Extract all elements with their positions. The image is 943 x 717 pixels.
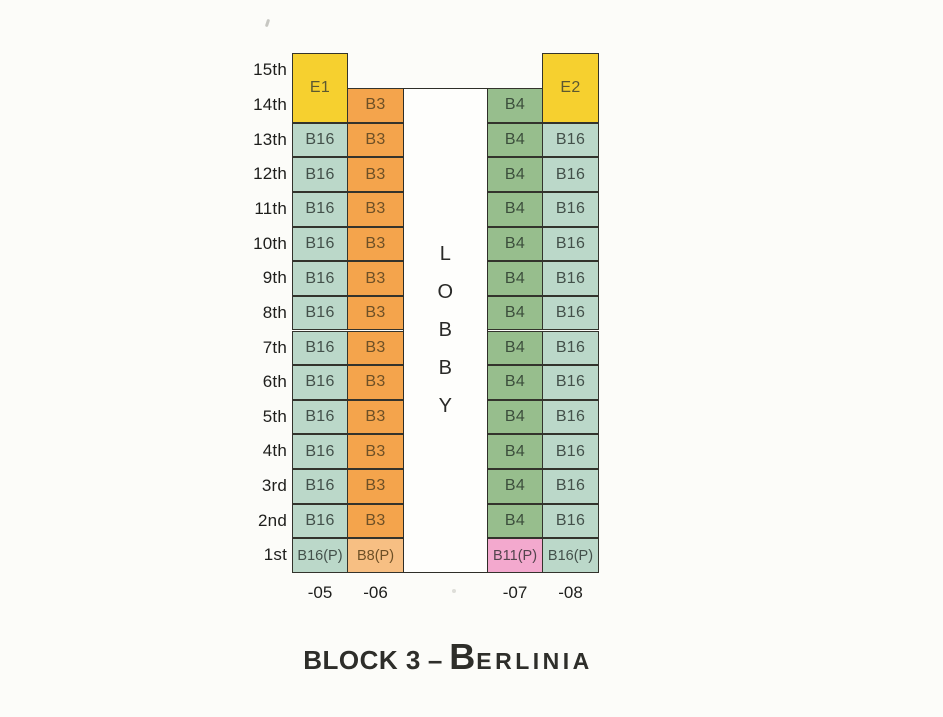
- unit-cell-b3: B3: [347, 157, 404, 192]
- unit-cell-b3: B3: [347, 192, 404, 227]
- unit-cell-b4: B4: [487, 123, 543, 158]
- floor-label: 10th: [215, 227, 287, 262]
- stack-label: -07: [485, 584, 545, 602]
- lobby-letter: B: [439, 349, 453, 387]
- floor-label: 15th: [215, 53, 287, 88]
- title-block-label: BLOCK 3: [303, 645, 421, 675]
- unit-cell-b4: B4: [487, 365, 543, 400]
- floor-label: 14th: [215, 88, 287, 123]
- unit-cell-b3: B3: [347, 365, 404, 400]
- lobby-letter: L: [440, 235, 452, 273]
- unit-cell-b16: B16: [542, 469, 599, 504]
- floor-label: 7th: [215, 331, 287, 366]
- unit-cell-b16: B16: [542, 434, 599, 469]
- unit-cell-b3: B3: [347, 400, 404, 435]
- unit-cell-b16: B16: [542, 296, 599, 331]
- unit-cell-b16: B16: [542, 227, 599, 262]
- unit-cell-e2: E2: [542, 53, 599, 122]
- unit-cell-b16: B16: [292, 469, 348, 504]
- unit-cell-b16: B16: [292, 296, 348, 331]
- unit-cell-b16: B16: [542, 123, 599, 158]
- unit-cell-b16: B16: [542, 261, 599, 296]
- unit-cell-b3: B3: [347, 504, 404, 539]
- unit-cell-b4: B4: [487, 400, 543, 435]
- floor-label: 6th: [215, 365, 287, 400]
- stack-label: -05: [290, 584, 350, 602]
- unit-cell-b16: B16: [542, 331, 599, 366]
- unit-cell-b3: B3: [347, 469, 404, 504]
- unit-cell-b16: B16: [292, 365, 348, 400]
- unit-cell-b3: B3: [347, 331, 404, 366]
- floor-label: 13th: [215, 123, 287, 158]
- unit-cell-b3: B3: [347, 296, 404, 331]
- unit-cell-b4: B4: [487, 261, 543, 296]
- unit-cell-b16: B16: [292, 331, 348, 366]
- title-name-initial: B: [449, 636, 475, 677]
- lobby-letter: O: [437, 273, 453, 311]
- unit-cell-b16: B16: [292, 434, 348, 469]
- unit-cell-b16: B16: [292, 400, 348, 435]
- unit-cell-b16: B16: [542, 157, 599, 192]
- unit-cell-b8p: B8(P): [347, 538, 404, 573]
- unit-cell-b16: B16: [292, 123, 348, 158]
- unit-cell-b4: B4: [487, 469, 543, 504]
- unit-cell-b4: B4: [487, 157, 543, 192]
- unit-cell-b16: B16: [292, 227, 348, 262]
- unit-cell-b16p: B16(P): [292, 538, 348, 573]
- unit-cell-b3: B3: [347, 434, 404, 469]
- unit-cell-b16: B16: [542, 400, 599, 435]
- unit-cell-b3: B3: [347, 88, 404, 123]
- unit-cell-b4: B4: [487, 192, 543, 227]
- floor-label: 9th: [215, 261, 287, 296]
- floor-label: 5th: [215, 400, 287, 435]
- unit-cell-b16p: B16(P): [542, 538, 599, 573]
- unit-cell-b16: B16: [292, 504, 348, 539]
- stack-label: -06: [346, 584, 406, 602]
- unit-cell-b3: B3: [347, 261, 404, 296]
- diagram-title: BLOCK 3–BERLINIA: [0, 636, 896, 674]
- unit-cell-b16: B16: [542, 192, 599, 227]
- unit-cell-e1: E1: [292, 53, 348, 122]
- unit-cell-b3: B3: [347, 227, 404, 262]
- floor-label: 8th: [215, 296, 287, 331]
- title-dash: –: [428, 645, 442, 675]
- floor-label: 2nd: [215, 504, 287, 539]
- lobby-letter: B: [439, 311, 453, 349]
- title-name-rest: ERLINIA: [476, 648, 593, 674]
- unit-cell-b11p: B11(P): [487, 538, 543, 573]
- unit-cell-b3: B3: [347, 123, 404, 158]
- unit-cell-b4: B4: [487, 227, 543, 262]
- scan-dot: [452, 589, 456, 593]
- block-stacking-diagram: 15th14th13th12th11th10th9th8th7th6th5th4…: [0, 0, 943, 717]
- unit-cell-b4: B4: [487, 88, 543, 123]
- unit-cell-b16: B16: [292, 261, 348, 296]
- lobby-letter: Y: [439, 387, 453, 425]
- unit-cell-b16: B16: [542, 504, 599, 539]
- lobby: LOBBY: [403, 88, 488, 573]
- unit-cell-b16: B16: [542, 365, 599, 400]
- unit-cell-b16: B16: [292, 192, 348, 227]
- stack-label: -08: [541, 584, 601, 602]
- unit-cell-b4: B4: [487, 504, 543, 539]
- unit-cell-b4: B4: [487, 296, 543, 331]
- scan-speck: [265, 19, 270, 28]
- unit-cell-b4: B4: [487, 331, 543, 366]
- unit-cell-b4: B4: [487, 434, 543, 469]
- unit-cell-b16: B16: [292, 157, 348, 192]
- floor-label: 1st: [215, 538, 287, 573]
- floor-label: 4th: [215, 434, 287, 469]
- floor-label: 3rd: [215, 469, 287, 504]
- floor-label: 12th: [215, 157, 287, 192]
- floor-label: 11th: [215, 192, 287, 227]
